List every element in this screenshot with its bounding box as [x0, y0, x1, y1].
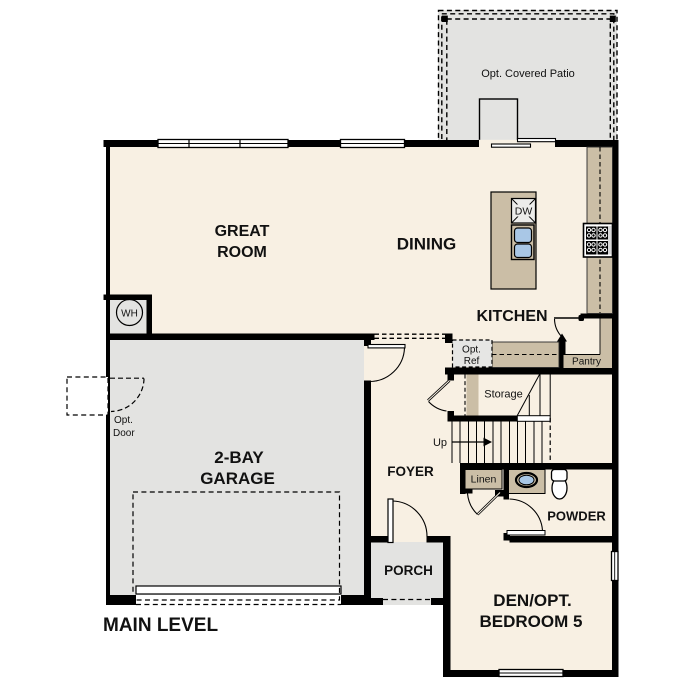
svg-text:2-BAY: 2-BAY — [214, 448, 264, 467]
svg-text:MAIN LEVEL: MAIN LEVEL — [103, 615, 218, 636]
svg-text:Door: Door — [113, 428, 135, 439]
svg-text:Up: Up — [433, 437, 447, 449]
svg-text:Storage: Storage — [484, 389, 523, 401]
svg-text:DINING: DINING — [397, 235, 457, 254]
svg-text:DW: DW — [515, 206, 533, 218]
svg-text:PORCH: PORCH — [384, 563, 433, 578]
svg-text:Ref: Ref — [464, 356, 480, 367]
svg-text:BEDROOM 5: BEDROOM 5 — [480, 612, 583, 631]
svg-text:ROOM: ROOM — [217, 244, 267, 261]
svg-text:Opt.: Opt. — [114, 415, 133, 426]
svg-text:Linen: Linen — [471, 474, 497, 486]
svg-text:GREAT: GREAT — [215, 223, 270, 240]
svg-text:FOYER: FOYER — [387, 464, 434, 479]
svg-text:POWDER: POWDER — [547, 509, 606, 524]
svg-text:Opt.: Opt. — [462, 345, 481, 356]
svg-text:KITCHEN: KITCHEN — [476, 308, 547, 325]
svg-text:WH: WH — [121, 309, 138, 320]
svg-text:Opt. Covered Patio: Opt. Covered Patio — [481, 68, 575, 80]
svg-text:GARAGE: GARAGE — [200, 469, 275, 488]
svg-text:Pantry: Pantry — [572, 357, 601, 368]
svg-text:DEN/OPT.: DEN/OPT. — [493, 591, 571, 610]
